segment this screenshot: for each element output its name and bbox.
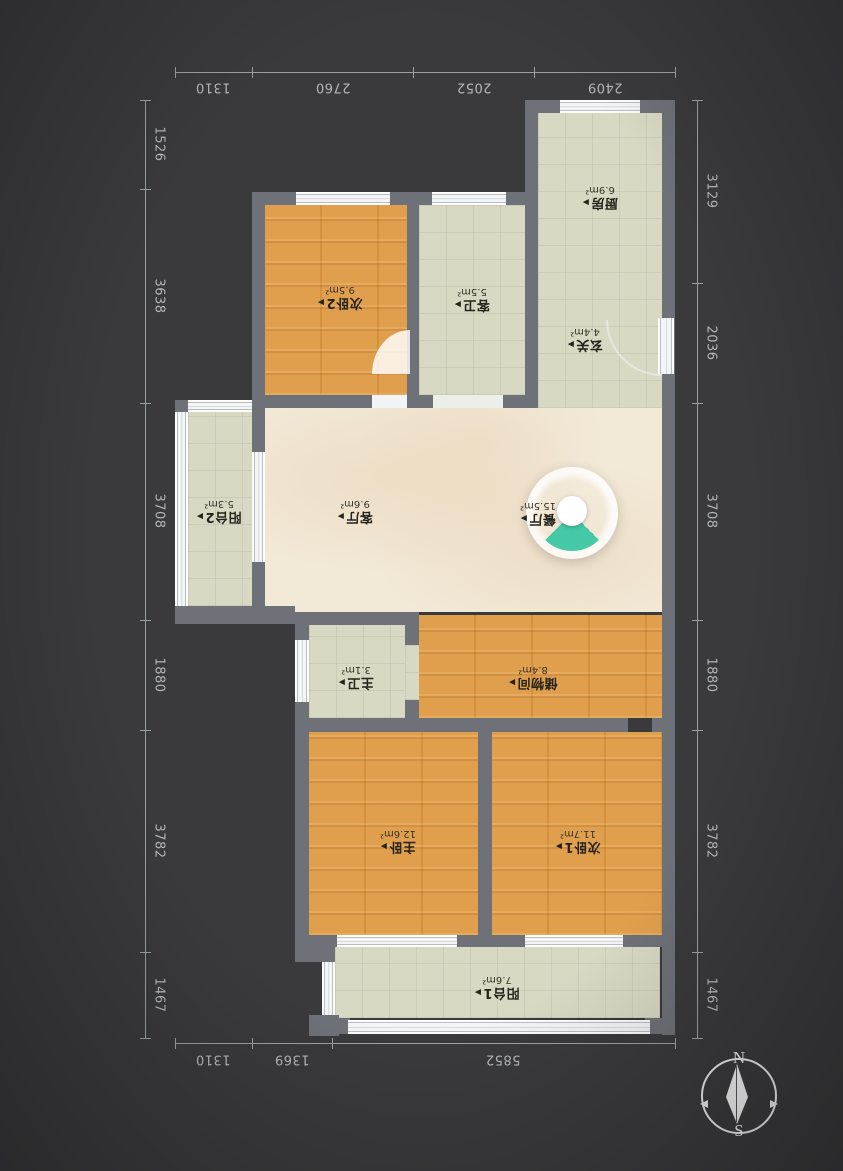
compass-west-arrow-icon: [700, 1100, 708, 1108]
compass: N S: [697, 1050, 781, 1138]
panorama-viewpoint-dot[interactable]: [557, 496, 587, 526]
wall: [525, 100, 538, 408]
balcony2-sliding-door: [252, 452, 265, 562]
room-label-bedroom1: 次卧1▶ 11.7m²: [555, 827, 600, 853]
dim-tick: [175, 67, 176, 78]
dim-tick: [140, 620, 151, 621]
dim-tick: [140, 189, 151, 190]
room-arrow-icon: ▶: [317, 298, 324, 307]
wall: [295, 612, 407, 625]
dim-label-top: 2760: [315, 80, 350, 95]
dim-tick: [140, 100, 151, 101]
balcony1-side-window: [322, 962, 335, 1015]
dim-tick: [692, 100, 703, 101]
dim-label-right: 1467: [704, 977, 719, 1012]
bedroom2-window: [296, 192, 390, 205]
bedroom1-window: [525, 935, 623, 947]
dim-label-left: 1526: [152, 126, 167, 161]
wall: [252, 395, 372, 408]
dim-tick: [692, 403, 703, 404]
guest-bath-door-opening: [433, 395, 503, 408]
guest-bath-window: [432, 192, 506, 205]
dim-label-top: 1310: [195, 80, 230, 95]
dim-tick: [692, 620, 703, 621]
dim-tick: [534, 67, 535, 78]
master-balcony-sliding-door: [337, 935, 457, 947]
dim-tick: [675, 1038, 676, 1049]
dim-tick: [140, 1038, 151, 1039]
room-arrow-icon: ▶: [520, 514, 527, 523]
dim-label-right: 2036: [704, 325, 719, 360]
room-label-guest-bath: 客卫▶ 5.5m²: [454, 285, 490, 311]
wall: [309, 718, 628, 732]
dimension-line-left: [145, 100, 146, 1038]
dim-label-bottom: 1369: [274, 1052, 309, 1067]
dim-label-right: 3129: [704, 173, 719, 208]
kitchen-window: [560, 100, 640, 113]
room-label-master-bath: 主卫▶ 3.1m²: [338, 663, 374, 689]
room-arrow-icon: ▶: [196, 512, 203, 521]
bedroom2-door-opening: [372, 395, 407, 408]
dim-tick: [692, 730, 703, 731]
dim-label-left: 3708: [152, 493, 167, 528]
floorplan-canvas: 厨房▶ 6.9m² 次卧2▶ 9.5m² 客卫▶ 5.5m² 玄关▶ 4.4m²…: [0, 0, 843, 1171]
wall: [503, 395, 538, 408]
room-label-bedroom2: 次卧2▶ 9.5m²: [317, 283, 362, 309]
room-label-balcony2: 阳台2▶ 5.3m²: [196, 497, 241, 523]
room-arrow-icon: ▶: [508, 678, 515, 687]
dim-tick: [692, 952, 703, 953]
dim-tick: [692, 283, 703, 284]
wall: [175, 606, 295, 624]
dim-label-bottom: 5852: [485, 1052, 520, 1067]
wall: [652, 718, 662, 732]
dim-tick: [252, 1038, 253, 1049]
wall: [252, 192, 265, 408]
room-label-living-room: 客厅▶ 9.6m²: [337, 497, 373, 523]
dim-tick: [692, 1038, 703, 1039]
room-arrow-icon: ▶: [454, 300, 461, 309]
wall: [175, 400, 188, 412]
room-arrow-icon: ▶: [582, 198, 589, 207]
wall: [405, 612, 419, 645]
dim-label-right: 3782: [704, 823, 719, 858]
wall: [478, 732, 492, 942]
dim-label-left: 1880: [152, 657, 167, 692]
dim-tick: [413, 67, 414, 78]
dimension-line-bottom: [175, 1043, 675, 1044]
master-bath-door-opening: [405, 645, 419, 700]
compass-south-label: S: [734, 1121, 743, 1141]
room-label-storage: 储物间▶ 8.4m²: [508, 663, 557, 689]
balcony2-top-window: [188, 400, 252, 412]
room-label-dining-room: 餐厅▶ 15.5m²: [520, 499, 556, 525]
room-arrow-icon: ▶: [338, 678, 345, 687]
dim-tick: [140, 730, 151, 731]
dim-tick: [140, 952, 151, 953]
dim-label-top: 2409: [587, 80, 622, 95]
dim-tick: [175, 1038, 176, 1049]
dim-tick: [252, 67, 253, 78]
room-arrow-icon: ▶: [380, 842, 387, 851]
dim-label-left: 3638: [152, 278, 167, 313]
compass-needle-seam: [736, 1066, 737, 1122]
compass-east-arrow-icon: [770, 1100, 778, 1108]
room-arrow-icon: ▶: [474, 988, 481, 997]
wall: [295, 935, 335, 962]
dim-tick: [332, 1038, 333, 1049]
room-label-entry: 玄关▶ 4.4m²: [567, 325, 603, 351]
room-label-kitchen: 厨房▶ 6.9m²: [582, 183, 618, 209]
wall: [662, 100, 675, 1035]
balcony2-side-window: [175, 412, 188, 606]
room-label-balcony1: 阳台1▶ 7.6m²: [474, 973, 519, 999]
room-label-master-bedroom: 主卧▶ 12.6m²: [380, 827, 416, 853]
room-arrow-icon: ▶: [337, 512, 344, 521]
dimension-line-right: [697, 100, 698, 1038]
dim-label-left: 1467: [152, 977, 167, 1012]
dimension-line-top: [175, 72, 675, 73]
dim-label-bottom: 1310: [195, 1052, 230, 1067]
dim-tick: [140, 403, 151, 404]
balcony1-window: [348, 1020, 650, 1034]
dim-label-right: 3708: [704, 493, 719, 528]
room-arrow-icon: ▶: [567, 340, 574, 349]
dim-tick: [675, 67, 676, 78]
master-bath-window: [295, 640, 309, 702]
wall: [419, 395, 433, 408]
room-arrow-icon: ▶: [555, 842, 562, 851]
wall: [407, 205, 419, 408]
dim-label-top: 2052: [456, 80, 491, 95]
dim-label-left: 3782: [152, 823, 167, 858]
dim-label-right: 1880: [704, 657, 719, 692]
